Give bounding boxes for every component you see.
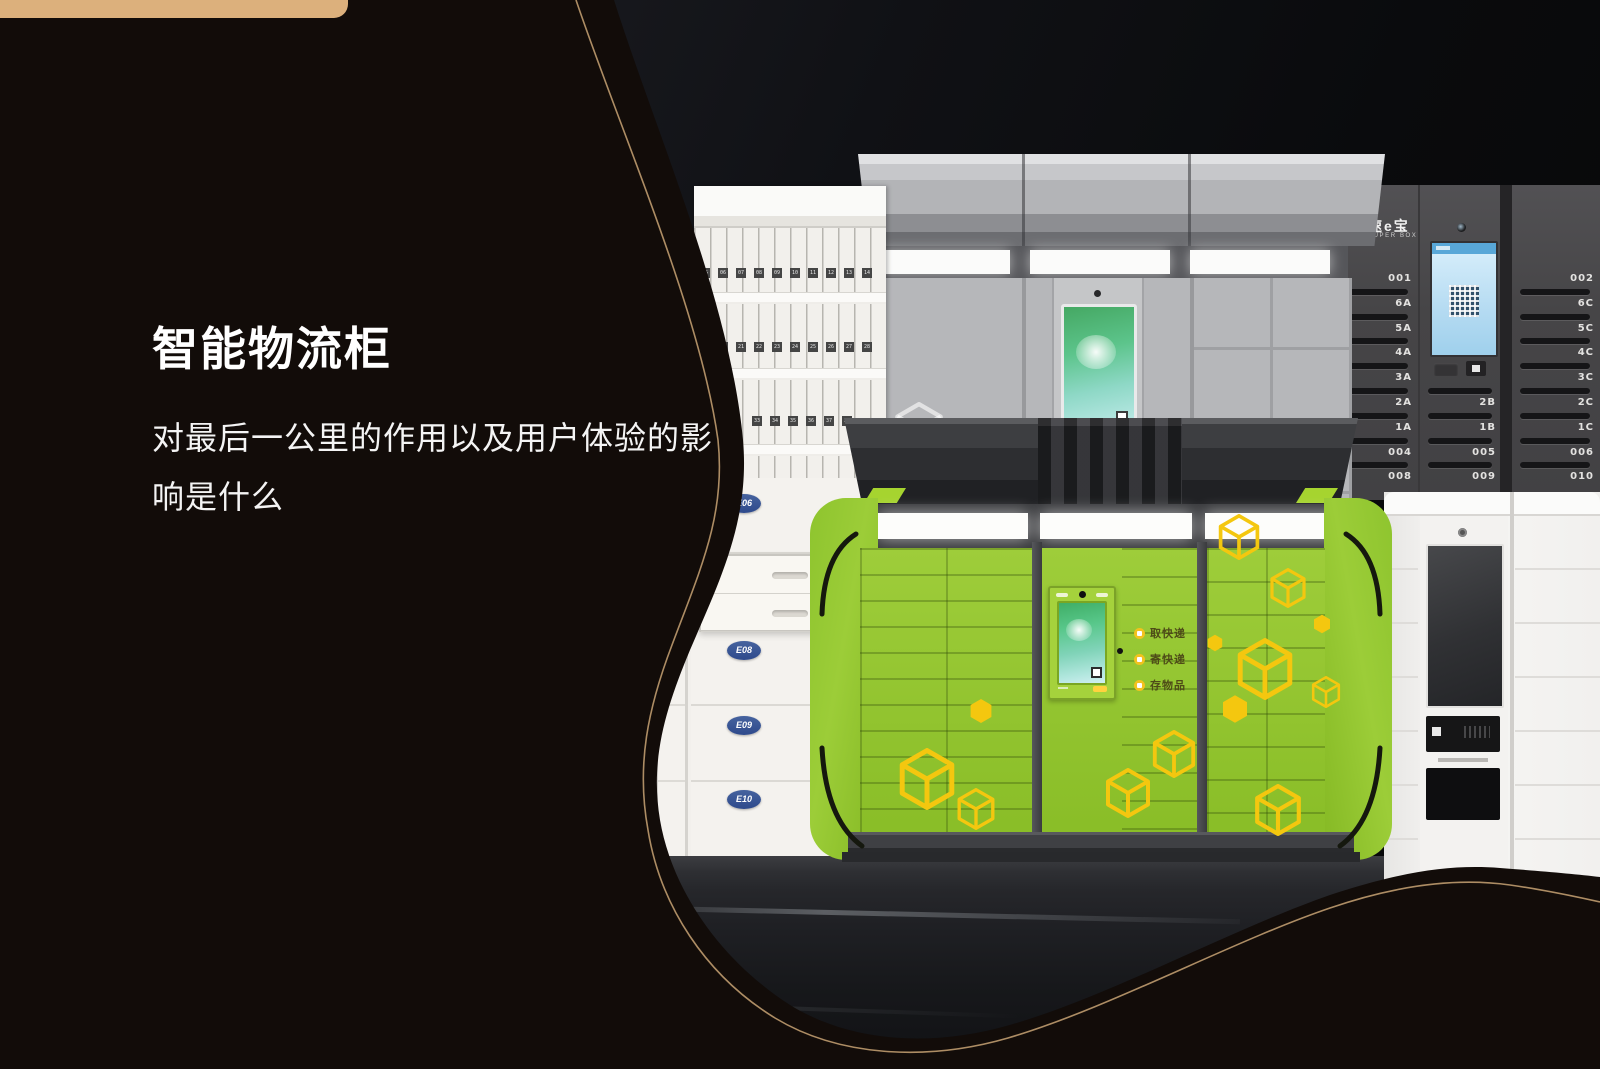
white-locker-console <box>1420 516 1508 898</box>
light-strip <box>1040 513 1192 539</box>
list-item: 010 <box>1518 459 1594 484</box>
list-item: 11 <box>808 268 818 278</box>
green-menu: 取快递 寄快递 存物品 <box>1134 620 1198 698</box>
canopy-segment <box>1038 418 1182 504</box>
list-item: 22 <box>754 342 764 352</box>
superbox-camera-icon <box>1457 223 1466 232</box>
divider-post <box>1032 542 1042 852</box>
camera-icon <box>1458 528 1467 537</box>
send-icon <box>1134 654 1145 665</box>
list-item: 35 <box>788 416 798 426</box>
door-badge: E08 <box>727 641 761 660</box>
slot <box>1058 687 1068 689</box>
light-strip <box>880 250 1010 274</box>
caption-line <box>1438 758 1488 762</box>
list-item: 23 <box>772 342 782 352</box>
list-item: 26 <box>826 342 836 352</box>
green-locker-canopy <box>844 418 1358 504</box>
pickup-icon <box>1134 628 1145 639</box>
divider-post <box>1197 542 1207 852</box>
green-doors-left <box>860 548 1032 840</box>
green-locker-header <box>854 504 1348 548</box>
menu-label: 寄快递 <box>1150 651 1186 667</box>
superbox-scanner <box>1434 363 1458 376</box>
keypad-panel <box>1426 716 1500 752</box>
grey-station-screen <box>1061 304 1137 434</box>
list-item: 3C <box>1518 360 1594 385</box>
lower-panel <box>1426 768 1500 820</box>
list-item: 009 <box>1426 459 1496 484</box>
letterbox-numbers-row1: 05060708091011121314 <box>700 268 872 278</box>
list-item: 005 <box>1426 435 1496 460</box>
list-item: 2C <box>1518 385 1594 410</box>
camera-icon <box>1079 591 1086 598</box>
tan-accent-bar <box>0 0 348 18</box>
green-console-screen <box>1057 601 1107 685</box>
door-badge: E09 <box>727 716 761 735</box>
light-strip <box>878 513 1028 539</box>
list-item: 10 <box>790 268 800 278</box>
superbox-compartments-c: 0026C5C4C3C2C1C006010 <box>1518 261 1594 484</box>
superbox-compartments-b: 2B1B005009 <box>1426 385 1496 484</box>
grey-station-light-row <box>868 246 1348 278</box>
button <box>1096 593 1108 597</box>
list-item: 06 <box>718 268 728 278</box>
superbox-panel-gap <box>1500 185 1512 500</box>
green-locker-base <box>848 832 1354 858</box>
letterbox-band <box>694 228 886 302</box>
text-block: 智能物流柜 对最后一公里的作用以及用户体验的影 响是什么 <box>152 322 752 527</box>
green-console <box>1048 586 1116 700</box>
list-item: 1C <box>1518 410 1594 435</box>
list-item: 13 <box>844 268 854 278</box>
menu-item-send: 寄快递 <box>1134 646 1198 672</box>
grey-station-canopy <box>858 154 1385 246</box>
list-item: 12 <box>826 268 836 278</box>
light-strip <box>1190 250 1330 274</box>
page-subtitle: 对最后一公里的作用以及用户体验的影 响是什么 <box>152 409 752 527</box>
list-item: 09 <box>772 268 782 278</box>
canopy-separator <box>1188 154 1191 246</box>
list-item: 07 <box>736 268 746 278</box>
list-item: 2B <box>1426 385 1496 410</box>
list-item: 28 <box>862 342 872 352</box>
list-item: 1B <box>1426 410 1496 435</box>
canopy-separator <box>1022 154 1025 246</box>
white-cabinet-side-column <box>658 478 688 878</box>
list-item: 006 <box>1518 435 1594 460</box>
camera-icon <box>1094 290 1101 297</box>
sensor-dot <box>1117 648 1123 654</box>
list-item: 25 <box>808 342 818 352</box>
list-item: 24 <box>790 342 800 352</box>
list-item: 05 <box>700 268 710 278</box>
page-title: 智能物流柜 <box>152 322 752 377</box>
white-locker-doors <box>1515 516 1600 898</box>
scan-button <box>1093 686 1107 692</box>
list-item: 14 <box>862 268 872 278</box>
list-item: 33 <box>752 416 762 426</box>
menu-item-pickup: 取快递 <box>1134 620 1198 646</box>
subtitle-line-2: 响是什么 <box>152 468 752 527</box>
letterbox-top <box>694 186 886 228</box>
panel-seam <box>1510 492 1514 904</box>
white-locker-top <box>1384 492 1600 516</box>
console-buttons <box>1050 591 1114 599</box>
white-locker-right <box>1384 492 1600 904</box>
superbox-screen <box>1430 241 1498 357</box>
menu-item-store: 存物品 <box>1134 672 1198 698</box>
subtitle-line-1: 对最后一公里的作用以及用户体验的影 <box>152 409 752 468</box>
green-locker-body: 取快递 寄快递 存物品 <box>854 548 1348 840</box>
store-icon <box>1134 680 1145 691</box>
list-item: 5C <box>1518 311 1594 336</box>
light-strip <box>1030 250 1170 274</box>
slide: 速e宝 SUPER BOX 0016A5A4A3A2A1A004008 2B1B… <box>0 0 1600 1069</box>
menu-label: 取快递 <box>1150 625 1186 641</box>
list-item: 002 <box>1518 261 1594 286</box>
list-item: 6C <box>1518 286 1594 311</box>
superbox-card-reader <box>1466 361 1486 376</box>
list-item: 08 <box>754 268 764 278</box>
list-item: 34 <box>770 416 780 426</box>
menu-label: 存物品 <box>1150 677 1186 693</box>
green-locker: 取快递 寄快递 存物品 <box>808 418 1394 864</box>
door-badge: E10 <box>727 790 761 809</box>
button <box>1056 593 1068 597</box>
list-item: 27 <box>844 342 854 352</box>
white-locker-screen <box>1426 544 1504 708</box>
list-item: 4C <box>1518 335 1594 360</box>
green-doors-right <box>1207 548 1325 840</box>
